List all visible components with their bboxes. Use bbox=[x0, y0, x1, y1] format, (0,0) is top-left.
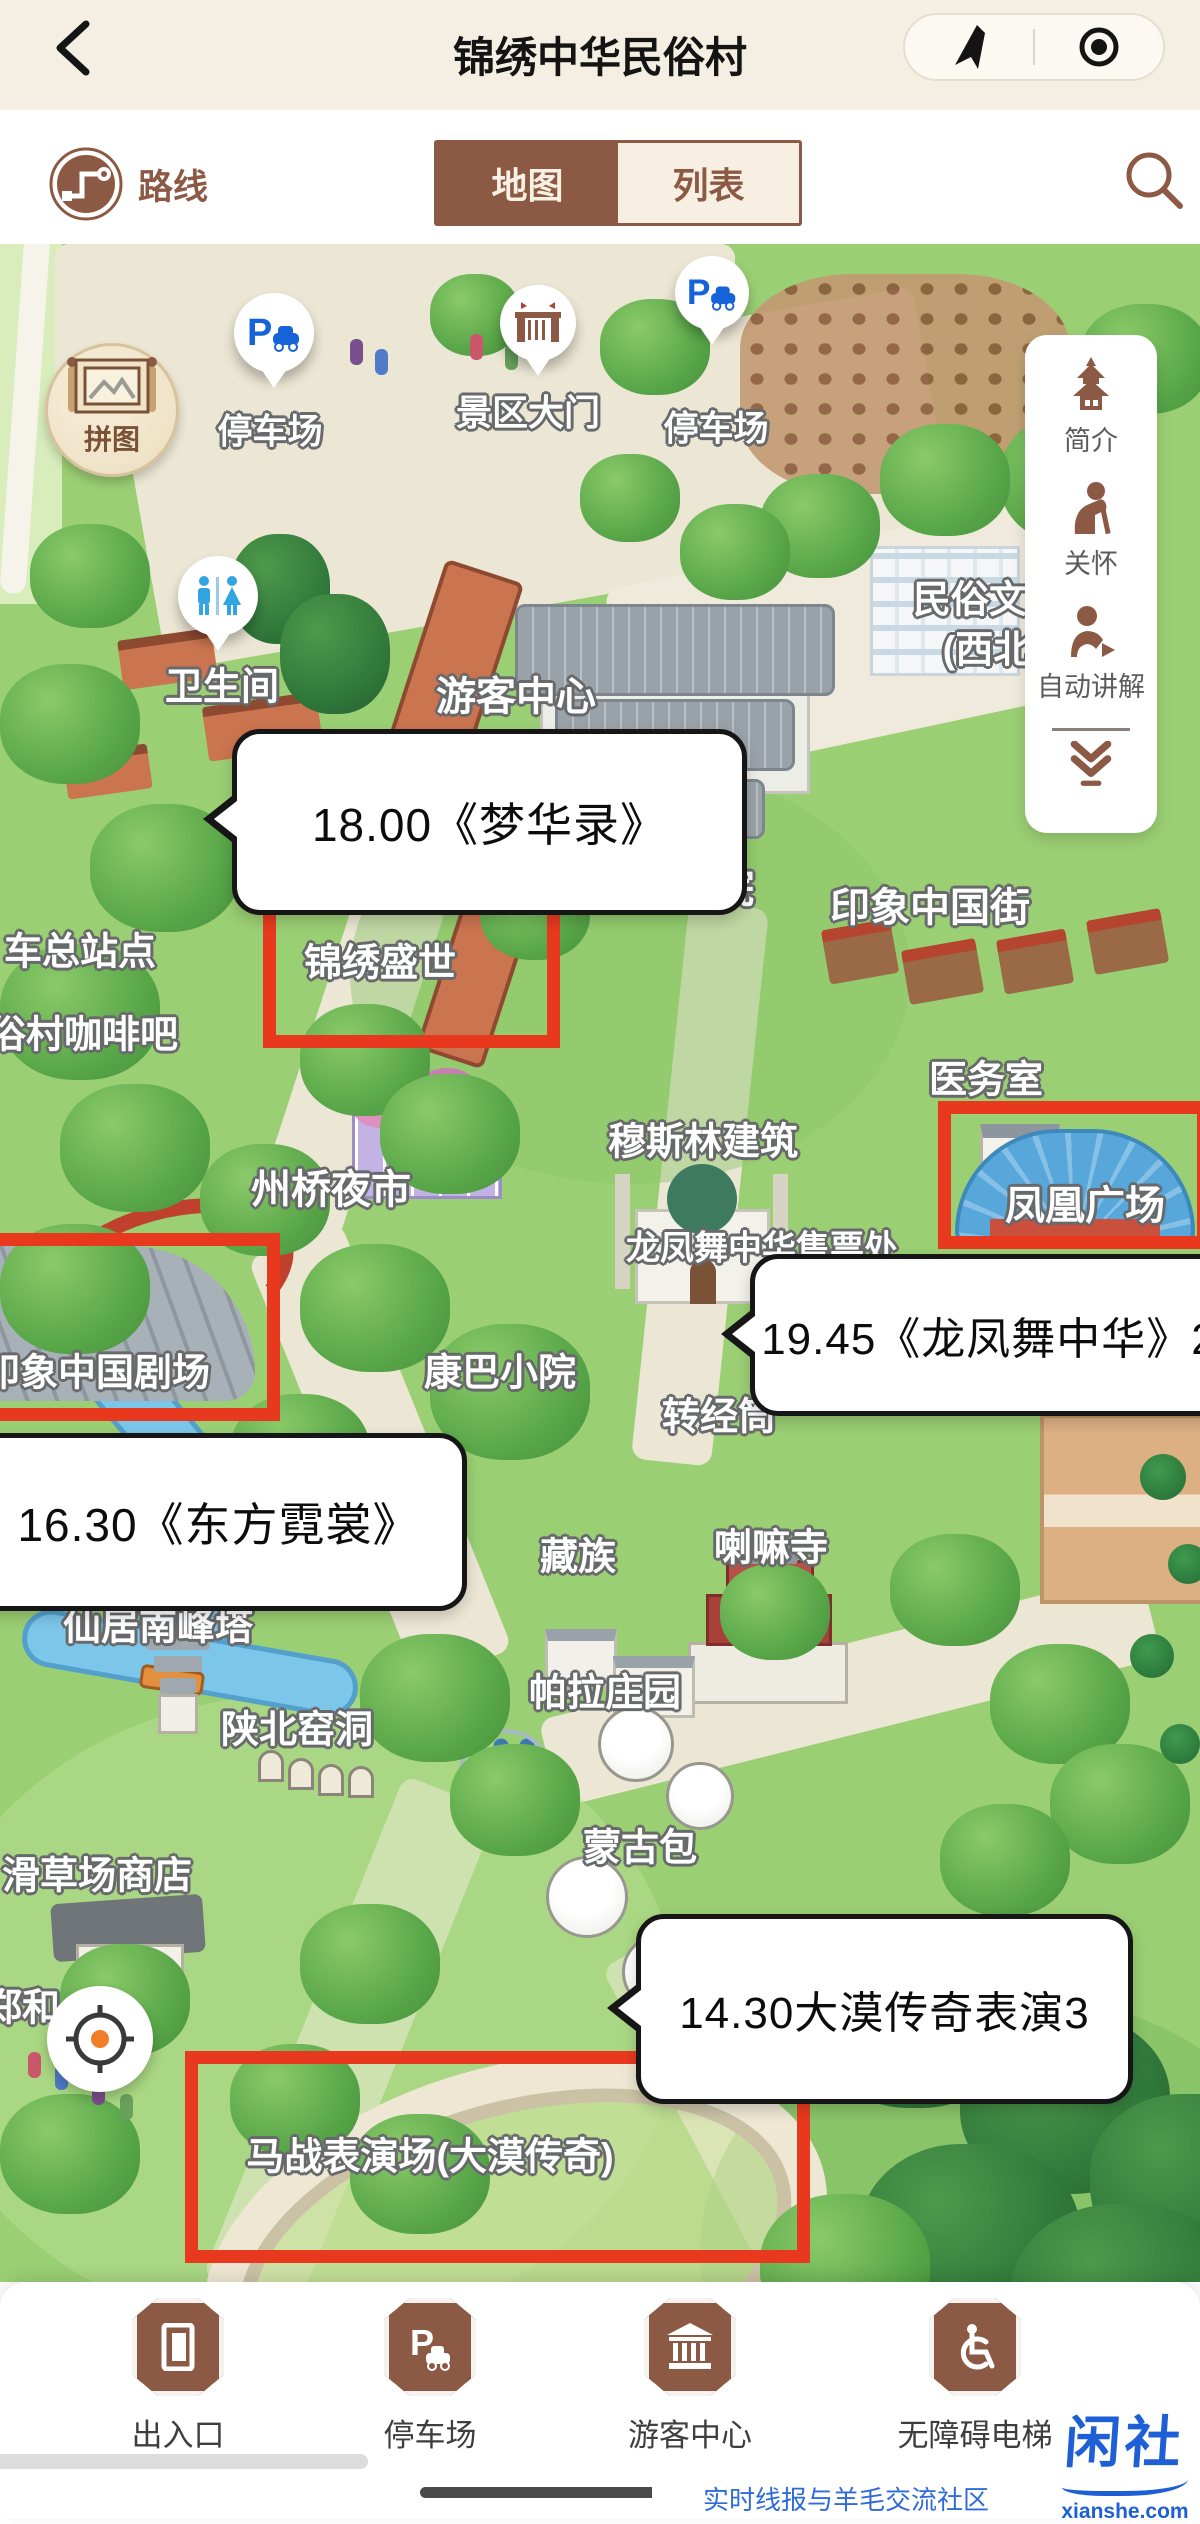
highlight-label: 锦绣盛世 bbox=[304, 932, 456, 987]
map-toolbar: 路线 地图 列表 bbox=[0, 110, 1200, 244]
watermark-domain: xianshe.com bbox=[1052, 2500, 1198, 2524]
nav-item-parking[interactable]: P 停车场 bbox=[335, 2298, 525, 2455]
parking-badge-icon: P bbox=[384, 2298, 476, 2396]
search-icon bbox=[1122, 148, 1186, 212]
capture-button[interactable] bbox=[1035, 15, 1163, 79]
bottom-nav: 出入口 P 停车场 游客中心 bbox=[0, 2282, 1200, 2519]
route-map-icon bbox=[48, 146, 124, 222]
miniprogram-capsule bbox=[903, 13, 1165, 81]
share-button[interactable] bbox=[905, 15, 1033, 79]
nav-item-accessible-elevator[interactable]: 无障碍电梯 bbox=[880, 2298, 1070, 2455]
bubble-tail bbox=[618, 1986, 646, 2030]
circle-dot-icon bbox=[1077, 25, 1121, 69]
parking-icon: P bbox=[245, 311, 303, 355]
audio-guide-icon bbox=[1064, 603, 1118, 657]
pin-label: 景区大门 bbox=[456, 384, 600, 436]
gate-icon bbox=[515, 302, 561, 344]
bubble-text: 18.00《梦华录》 bbox=[312, 789, 667, 855]
panel-item-label: 简介 bbox=[1064, 419, 1118, 458]
bubble-text: 19.45《龙凤舞中华》2 bbox=[761, 1303, 1200, 1367]
schedule-bubble: 14.30大漠传奇表演3 bbox=[636, 1914, 1133, 2104]
schedule-bubble: 19.45《龙凤舞中华》2 bbox=[750, 1254, 1200, 1416]
pin-label: 卫生间 bbox=[165, 656, 279, 711]
park-map[interactable]: 游客中心 民俗文 (西北 院 印象中国街 车总站点 俗村咖啡吧 医务室 穆斯林建… bbox=[0, 244, 1200, 2282]
place-label: (西北 bbox=[943, 619, 1032, 674]
panel-divider bbox=[1052, 728, 1130, 731]
place-label: 陕北窑洞 bbox=[221, 1699, 373, 1754]
pin-parking-2[interactable]: P bbox=[675, 256, 749, 330]
locate-button[interactable] bbox=[47, 1986, 153, 2092]
pin-scenic-gate[interactable] bbox=[500, 285, 576, 361]
nav-item-label: 出入口 bbox=[132, 2410, 225, 2455]
search-button[interactable] bbox=[1122, 148, 1186, 217]
place-label: 帕拉庄园 bbox=[529, 1662, 681, 1717]
bubble-tail bbox=[732, 1312, 760, 1356]
place-label: 蒙古包 bbox=[583, 1817, 697, 1872]
app-header: 锦绣中华民俗村 bbox=[0, 0, 1200, 110]
double-chevron-down-icon bbox=[1066, 741, 1116, 789]
quick-panel: 简介 关怀 自动讲解 bbox=[1025, 335, 1157, 833]
nav-arrow-icon bbox=[947, 23, 991, 71]
watermark-swoosh bbox=[1062, 2479, 1188, 2496]
place-label: 藏族 bbox=[540, 1526, 616, 1581]
highlight-label: 凤凰广场 bbox=[1005, 1173, 1165, 1231]
route-button[interactable]: 路线 bbox=[48, 146, 208, 222]
place-label: 民俗文 bbox=[913, 569, 1027, 624]
nav-item-label: 停车场 bbox=[384, 2410, 477, 2455]
route-label: 路线 bbox=[138, 159, 208, 210]
place-label: 车总站点 bbox=[4, 921, 156, 976]
bubble-tail bbox=[214, 797, 242, 841]
parking-icon: P bbox=[685, 272, 739, 314]
panel-item-label: 关怀 bbox=[1064, 542, 1118, 581]
panel-item-intro[interactable]: 简介 bbox=[1064, 357, 1118, 458]
watermark: 闲社 xianshe.com bbox=[1052, 2398, 1198, 2524]
panel-item-audio-guide[interactable]: 自动讲解 bbox=[1037, 603, 1145, 704]
wheelchair-icon bbox=[929, 2298, 1021, 2396]
svg-text:P: P bbox=[687, 273, 711, 312]
elder-care-icon bbox=[1064, 480, 1118, 534]
view-toggle: 地图 列表 bbox=[434, 140, 802, 226]
schedule-bubble: 16.30《东方霓裳》 bbox=[0, 1433, 467, 1611]
place-label: 印象中国街 bbox=[830, 875, 1030, 933]
nav-item-exits[interactable]: 出入口 bbox=[83, 2298, 273, 2455]
place-label: 滑草场商店 bbox=[2, 1845, 192, 1900]
pin-parking-1[interactable]: P bbox=[234, 293, 314, 373]
place-label: 俗村咖啡吧 bbox=[0, 1004, 178, 1059]
door-icon bbox=[132, 2298, 224, 2396]
crosshair-icon bbox=[64, 2003, 136, 2075]
place-label: 穆斯林建筑 bbox=[608, 1111, 798, 1166]
svg-text:P: P bbox=[247, 312, 272, 354]
place-label: 医务室 bbox=[929, 1049, 1043, 1104]
panel-collapse-button[interactable] bbox=[1066, 741, 1116, 794]
puzzle-label: 拼图 bbox=[84, 418, 140, 458]
scroll-map-icon bbox=[60, 346, 164, 424]
bubble-text: 16.30《东方霓裳》 bbox=[17, 1489, 419, 1555]
bubble-text: 14.30大漠传奇表演3 bbox=[679, 1977, 1090, 2041]
watermark-brand: 闲社 bbox=[1049, 2398, 1200, 2479]
highlight-label: 印象中国剧场 bbox=[0, 1342, 210, 1397]
nav-item-label: 游客中心 bbox=[628, 2410, 752, 2455]
tab-map[interactable]: 地图 bbox=[437, 143, 618, 223]
visitor-center-icon bbox=[644, 2298, 736, 2396]
watermark-tagline: 实时线报与羊毛交流社区 bbox=[652, 2477, 1040, 2519]
puzzle-button[interactable]: 拼图 bbox=[45, 343, 179, 477]
pin-restroom[interactable] bbox=[178, 556, 258, 636]
nav-scrollbar[interactable] bbox=[0, 2454, 368, 2469]
place-label: 喇嘛寺 bbox=[714, 1517, 828, 1572]
highlight-label: 马战表演场(大漠传奇) bbox=[246, 2126, 613, 2181]
restroom-icon bbox=[191, 575, 245, 617]
place-label: 州桥夜市 bbox=[251, 1157, 411, 1215]
place-label: 康巴小院 bbox=[424, 1342, 576, 1397]
tab-list[interactable]: 列表 bbox=[618, 143, 799, 223]
pagoda-icon bbox=[1064, 357, 1118, 411]
nav-item-visitor-center[interactable]: 游客中心 bbox=[595, 2298, 785, 2455]
panel-item-care[interactable]: 关怀 bbox=[1064, 480, 1118, 581]
panel-item-label: 自动讲解 bbox=[1037, 665, 1145, 704]
nav-item-label: 无障碍电梯 bbox=[898, 2410, 1053, 2455]
schedule-bubble: 18.00《梦华录》 bbox=[232, 729, 747, 915]
place-label: 游客中心 bbox=[436, 664, 596, 722]
pin-label: 停车场 bbox=[663, 401, 768, 452]
pin-label: 停车场 bbox=[217, 404, 322, 455]
